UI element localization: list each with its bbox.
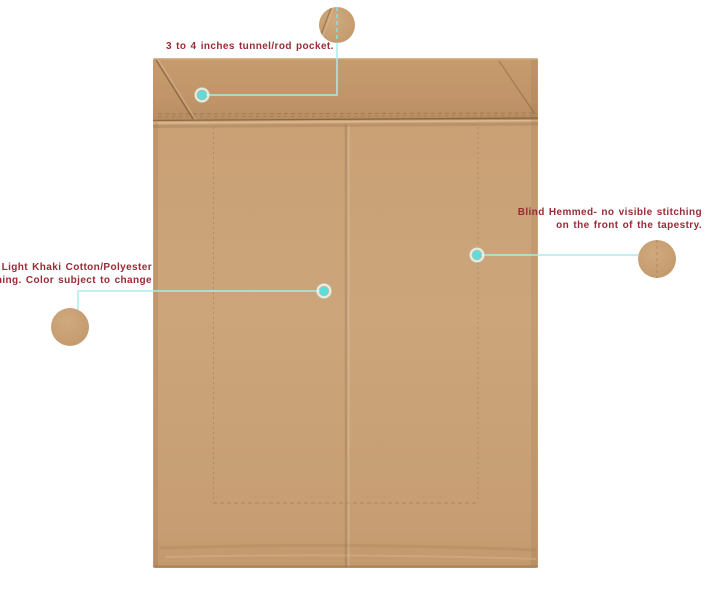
lining-detail-circle (51, 308, 89, 346)
blind-hem-label-line2: on the front of the tapestry. (518, 219, 702, 232)
rod-pocket-flap (153, 58, 538, 120)
rod-pocket-label: 3 to 4 inches tunnel/rod pocket. (166, 40, 334, 53)
lining-hotspot[interactable] (316, 283, 332, 299)
lining-label-line1: Light Khaki Cotton/Polyester (0, 261, 152, 274)
tapestry-image (153, 58, 538, 568)
blind-hem-hotspot[interactable] (469, 247, 485, 263)
blind-hem-label: Blind Hemmed- no visible stitching on th… (518, 206, 702, 232)
blind-hem-detail-circle (638, 240, 676, 278)
tapestry-illustration (0, 0, 706, 600)
rod-pocket-hotspot[interactable] (194, 87, 210, 103)
lining-label-line2: lining. Color subject to change (0, 274, 152, 287)
rod-pocket-detail-circle (319, 7, 355, 43)
product-annotation-canvas: 3 to 4 inches tunnel/rod pocket. Blind H… (0, 0, 706, 600)
blind-hem-label-line1: Blind Hemmed- no visible stitching (518, 206, 702, 219)
lining-label: Light Khaki Cotton/Polyester lining. Col… (0, 261, 152, 287)
